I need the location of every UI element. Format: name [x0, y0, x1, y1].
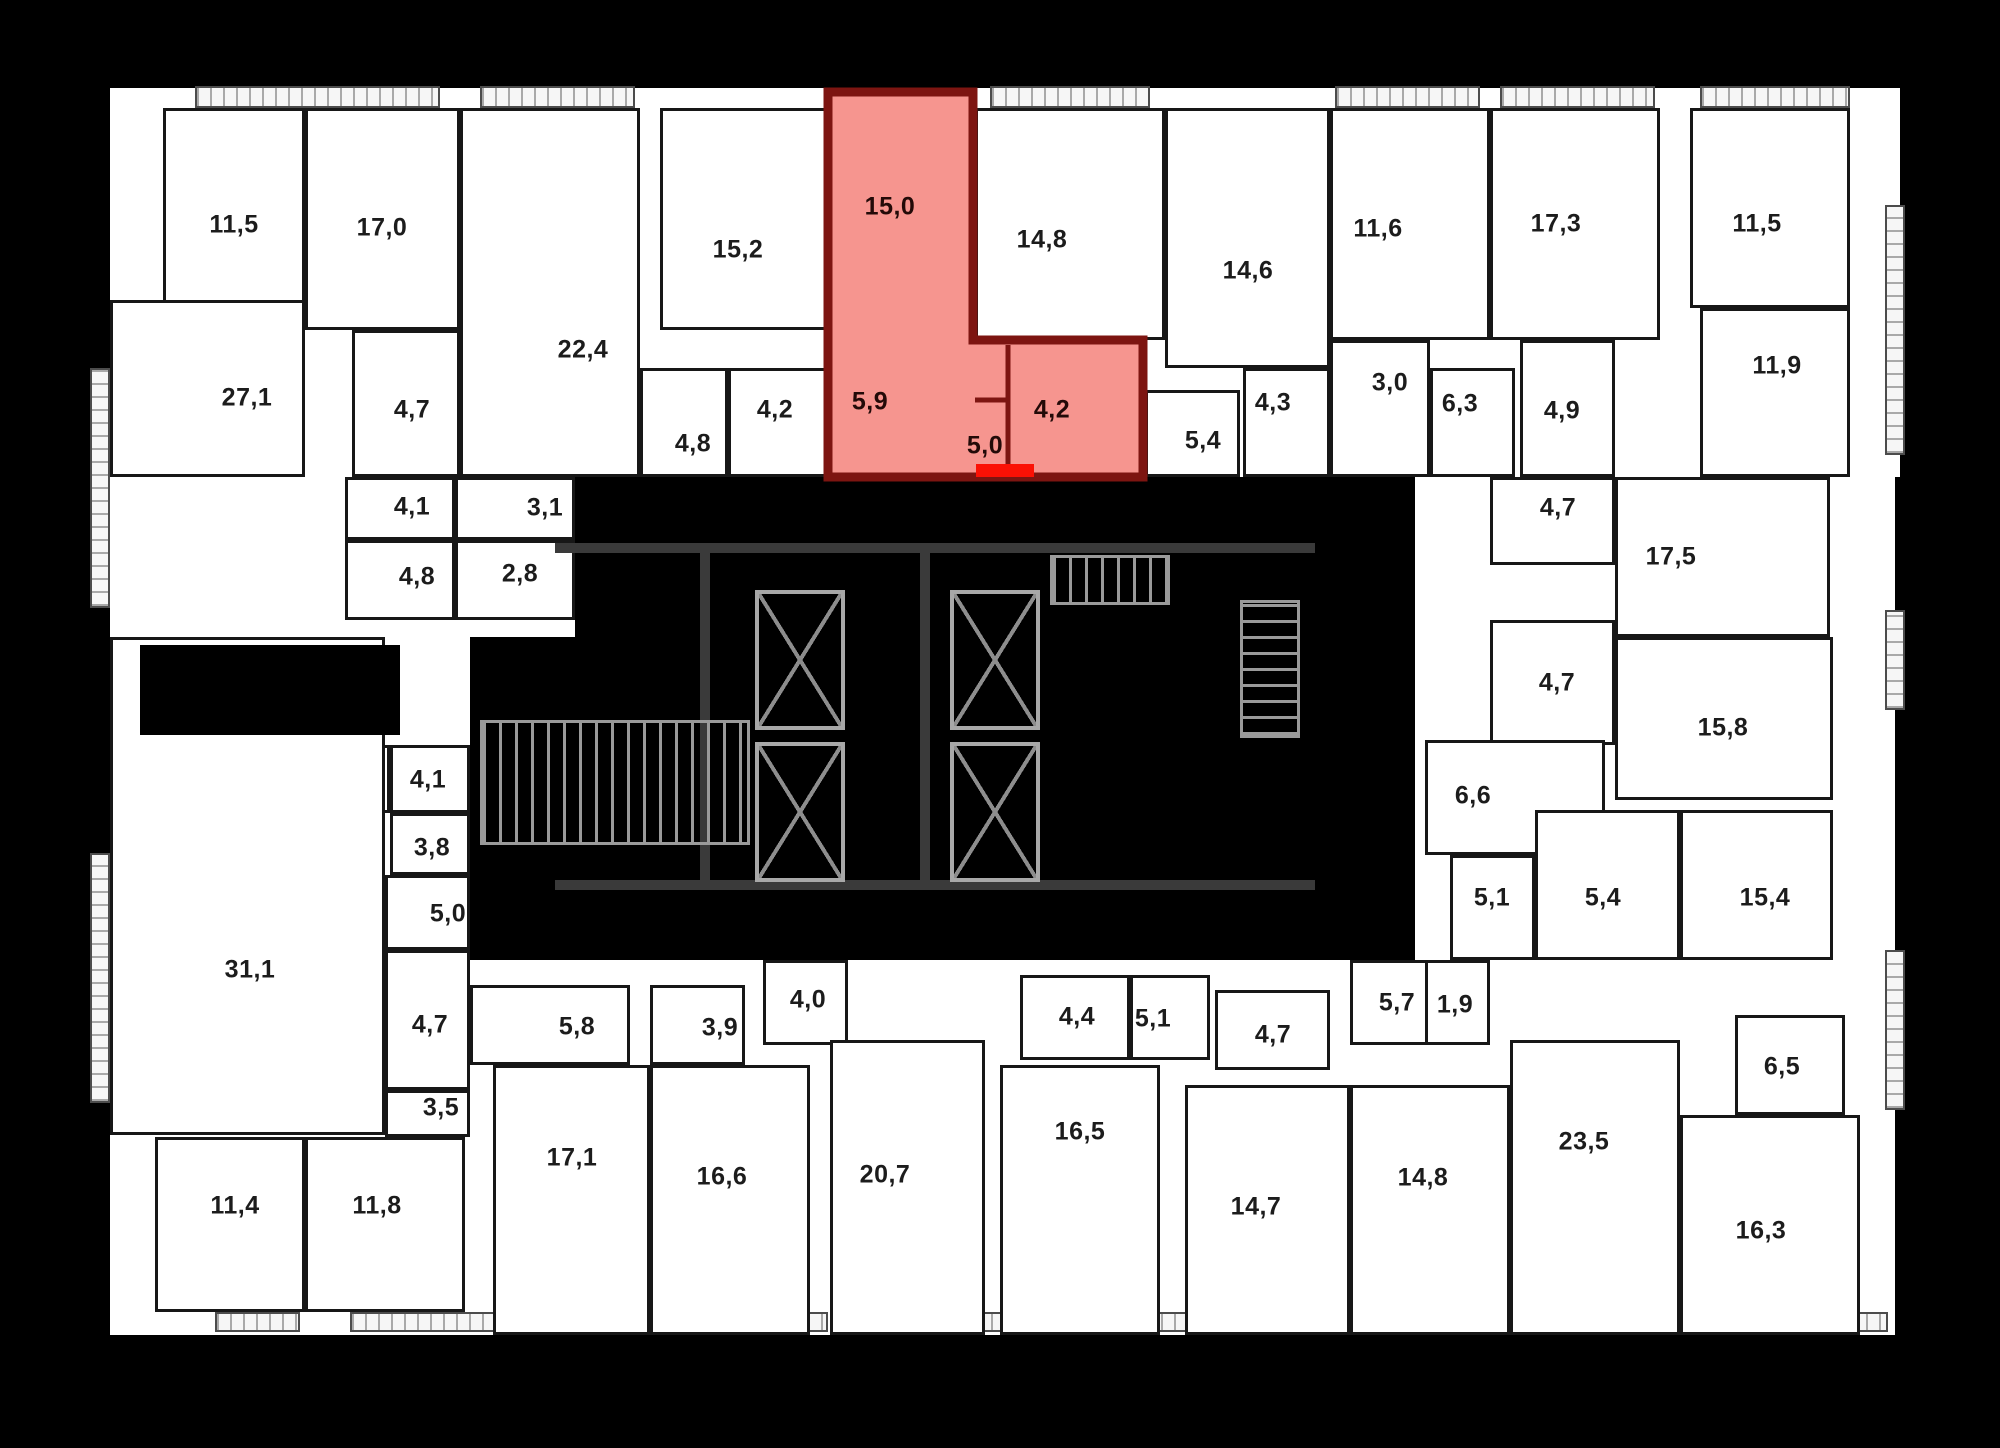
room-area-label: 17,1	[547, 1144, 598, 1173]
room-area-label: 4,7	[1540, 494, 1576, 523]
balcony-strip	[90, 368, 110, 608]
room-area-label: 14,7	[1231, 1193, 1282, 1222]
balcony-strip	[90, 853, 110, 1103]
selected-apartment-room-area-label: 5,0	[967, 432, 1003, 461]
room-area-label: 20,7	[860, 1161, 911, 1190]
room-area-label: 4,1	[394, 493, 430, 522]
selected-apartment-room-area-label: 5,9	[852, 388, 888, 417]
room	[460, 108, 640, 477]
room-area-label: 15,2	[713, 236, 764, 265]
room-area-label: 4,4	[1059, 1003, 1095, 1032]
room-area-label: 6,5	[1764, 1053, 1800, 1082]
room	[1700, 308, 1850, 477]
staircase-icon	[1240, 600, 1300, 738]
room-area-label: 4,7	[1539, 669, 1575, 698]
balcony-strip	[990, 86, 1150, 108]
balcony-strip	[1885, 205, 1905, 455]
elevator-shaft-icon	[755, 742, 845, 882]
room-area-label: 11,5	[209, 211, 258, 240]
room	[975, 108, 1165, 340]
entry-corridor-notch	[140, 645, 400, 735]
room-area-label: 4,3	[1255, 389, 1291, 418]
room-area-label: 3,8	[414, 834, 450, 863]
room	[470, 985, 630, 1065]
room-area-label: 5,0	[430, 900, 466, 929]
room-area-label: 27,1	[222, 384, 273, 413]
room	[650, 1065, 810, 1335]
elevator-shaft-icon	[755, 590, 845, 730]
room-area-label: 17,5	[1646, 543, 1697, 572]
balcony-strip	[1885, 610, 1905, 710]
core-corridor-wall	[555, 880, 1315, 890]
room-area-label: 17,3	[1531, 210, 1582, 239]
balcony-strip	[480, 86, 635, 108]
room	[1243, 368, 1330, 477]
room-area-label: 5,8	[559, 1013, 595, 1042]
elevator-shaft-icon	[950, 742, 1040, 882]
room	[1350, 1085, 1510, 1335]
core-corridor-wall	[555, 543, 1315, 553]
room-area-label: 5,4	[1185, 427, 1221, 456]
balcony-strip	[1885, 950, 1905, 1110]
selected-apartment-room-area-label: 4,2	[1034, 396, 1070, 425]
room-area-label: 23,5	[1559, 1128, 1610, 1157]
room-area-label: 4,9	[1544, 397, 1580, 426]
room-area-label: 5,4	[1585, 884, 1621, 913]
room-area-label: 4,2	[757, 396, 793, 425]
room	[1000, 1065, 1160, 1335]
room	[1165, 108, 1330, 368]
room	[305, 1137, 465, 1312]
room-area-label: 5,1	[1474, 884, 1510, 913]
room	[1510, 1040, 1680, 1335]
room-area-label: 3,1	[527, 494, 563, 523]
balcony-strip	[215, 1312, 300, 1332]
balcony-strip	[195, 86, 440, 108]
room-area-label: 14,6	[1223, 257, 1274, 286]
room-area-label: 6,3	[1442, 390, 1478, 419]
staircase-icon	[1050, 555, 1170, 605]
room-area-label: 16,6	[697, 1163, 748, 1192]
room-area-label: 2,8	[502, 560, 538, 589]
balcony-strip	[1335, 86, 1480, 108]
balcony-strip	[1500, 86, 1655, 108]
room-area-label: 11,5	[1732, 210, 1781, 239]
room	[1330, 340, 1430, 477]
floor-plan-canvas: 11,517,027,14,722,415,24,84,214,85,414,6…	[0, 0, 2000, 1448]
room-area-label: 14,8	[1017, 226, 1068, 255]
room-area-label: 4,1	[410, 766, 446, 795]
room-area-label: 11,9	[1752, 352, 1801, 381]
room	[660, 108, 828, 330]
room-area-label: 4,0	[790, 986, 826, 1015]
room-area-label: 11,6	[1353, 215, 1402, 244]
room-area-label: 5,1	[1135, 1005, 1171, 1034]
room-area-label: 1,9	[1437, 991, 1473, 1020]
selected-apartment-room-area-label: 15,0	[865, 193, 916, 222]
room-area-label: 6,6	[1455, 782, 1491, 811]
room-area-label: 16,5	[1055, 1118, 1106, 1147]
room-area-label: 5,7	[1379, 989, 1415, 1018]
room	[155, 1137, 305, 1312]
room-area-label: 14,8	[1398, 1164, 1449, 1193]
room	[640, 368, 728, 477]
room-area-label: 4,7	[1255, 1021, 1291, 1050]
room-area-label: 15,8	[1698, 714, 1749, 743]
room-area-label: 31,1	[225, 956, 276, 985]
room-area-label: 15,4	[1740, 884, 1791, 913]
room	[1430, 368, 1515, 477]
room-area-label: 4,8	[399, 563, 435, 592]
staircase-icon	[480, 720, 750, 845]
core-corridor-wall	[920, 553, 930, 883]
room-area-label: 11,4	[210, 1192, 259, 1221]
room-area-label: 16,3	[1736, 1217, 1787, 1246]
room-area-label: 17,0	[357, 214, 408, 243]
room-area-label: 4,7	[412, 1011, 448, 1040]
room	[1690, 108, 1850, 308]
room-area-label: 11,8	[352, 1192, 401, 1221]
room-area-label: 3,0	[1372, 369, 1408, 398]
balcony-strip	[1700, 86, 1850, 108]
room-area-label: 3,5	[423, 1094, 459, 1123]
room-area-label: 22,4	[558, 336, 609, 365]
room	[493, 1065, 650, 1335]
room-area-label: 4,8	[675, 430, 711, 459]
elevator-shaft-icon	[950, 590, 1040, 730]
room-area-label: 3,9	[702, 1014, 738, 1043]
room	[110, 300, 305, 477]
room-area-label: 4,7	[394, 396, 430, 425]
